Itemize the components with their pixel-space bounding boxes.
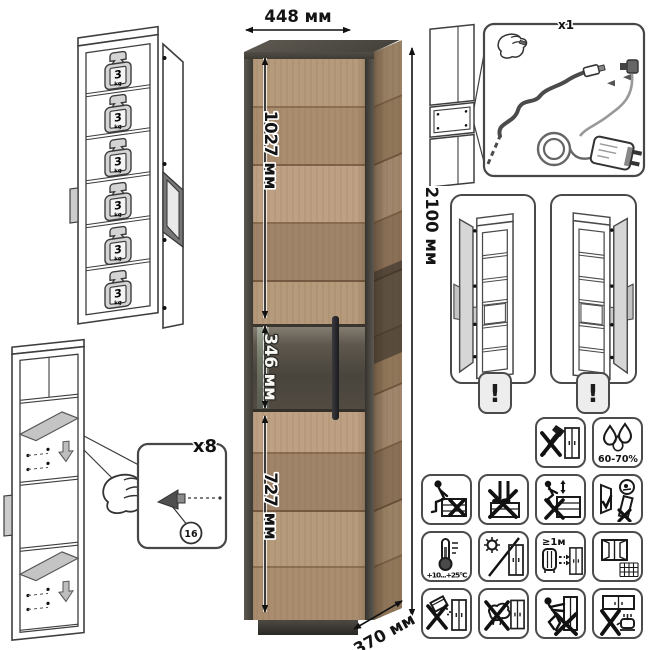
pictogram-humidity: 60-70% xyxy=(592,417,643,468)
svg-text:kg: kg xyxy=(114,124,122,131)
shelf-load-diagram: 3 kg 3 kg 3 kg 3 kg 3 kg 3 kg xyxy=(6,12,190,330)
svg-text:3: 3 xyxy=(114,111,122,125)
part-number-label: 16 xyxy=(184,529,198,540)
svg-text:3: 3 xyxy=(114,155,122,169)
pictogram-no-climbing xyxy=(535,474,586,525)
cabinet-top-frame xyxy=(244,52,374,59)
exclamation-mark: ! xyxy=(489,379,500,408)
shelf-assembly-diagram: x8 16 xyxy=(2,332,234,650)
pictogram-no-standing xyxy=(478,474,529,525)
svg-text:3: 3 xyxy=(114,243,122,257)
no-wet-cloth-icon xyxy=(482,592,526,636)
grid-spacer xyxy=(478,417,529,468)
variant-cabinet-left xyxy=(452,196,534,382)
cabinet-front xyxy=(244,52,374,620)
led-qty-label: x1 xyxy=(558,18,574,32)
pictogram-no-sunlight xyxy=(478,531,529,582)
cabinet-left-frame xyxy=(244,52,253,620)
heater-distance-icon: ≥1м xyxy=(539,535,583,579)
pictogram-no-heat-below xyxy=(592,588,643,639)
pictogram-heater-distance: ≥1м xyxy=(535,531,586,582)
svg-text:kg: kg xyxy=(114,168,122,175)
ventilation-icon xyxy=(596,535,640,579)
open-door xyxy=(163,44,184,328)
no-sitting-icon xyxy=(425,478,469,522)
no-heat-below-icon xyxy=(596,592,640,636)
exclamation-icon: ! xyxy=(478,372,512,414)
svg-text:3: 3 xyxy=(114,199,122,213)
pictogram-no-axe xyxy=(535,417,586,468)
grid-spacer xyxy=(421,417,472,468)
assembly-instruction-sheet: { "dimensions": { "width": "448 мм", "up… xyxy=(0,0,650,650)
variant-cabinet-right xyxy=(552,196,635,382)
temperature-icon: +10...+25°C xyxy=(425,535,469,579)
heater-distance-label: ≥1м xyxy=(542,537,566,548)
svg-text:kg: kg xyxy=(114,81,122,88)
pictogram-no-dragging xyxy=(535,588,586,639)
cabinet-side-glass-band xyxy=(374,260,402,364)
cabinet-handle xyxy=(332,316,339,420)
door-warning-icon xyxy=(596,478,640,522)
no-climbing-icon xyxy=(539,478,583,522)
led-kit-diagram: x1 xyxy=(422,16,650,186)
fastener-qty-label: x8 xyxy=(193,436,217,457)
pictogram-temperature: +10...+25°C xyxy=(421,531,472,582)
dim-height-label: 2100 мм xyxy=(422,187,441,266)
temperature-label: +10...+25°C xyxy=(426,570,467,579)
no-axe-icon xyxy=(539,421,583,465)
svg-text:kg: kg xyxy=(114,300,122,307)
exclamation-icon: ! xyxy=(576,372,610,414)
pictogram-no-abrasive xyxy=(421,588,472,639)
svg-text:3: 3 xyxy=(114,287,122,301)
humidity-label: 60-70% xyxy=(598,454,638,465)
no-sunlight-icon xyxy=(482,535,526,579)
dim-width-label: 448 мм xyxy=(264,7,331,26)
pictogram-ventilation xyxy=(592,531,643,582)
pictogram-door-warning xyxy=(592,474,643,525)
svg-text:kg: kg xyxy=(114,256,122,263)
pictogram-no-wet-cloth xyxy=(478,588,529,639)
no-dragging-icon xyxy=(539,592,583,636)
no-standing-icon xyxy=(482,478,526,522)
no-abrasive-icon xyxy=(425,592,469,636)
variant-left-hinged xyxy=(450,194,536,384)
exclamation-mark: ! xyxy=(587,379,598,408)
cabinet-right-frame xyxy=(365,52,374,620)
humidity-icon: 60-70% xyxy=(596,421,640,465)
svg-text:3: 3 xyxy=(114,68,122,82)
pictogram-no-sitting xyxy=(421,474,472,525)
cabinet-glass-section xyxy=(253,324,365,412)
cabinet-plinth xyxy=(258,620,358,635)
svg-text:kg: kg xyxy=(114,212,122,219)
glass-reflection xyxy=(257,327,269,409)
variant-right-hinged xyxy=(550,194,637,384)
care-pictogram-grid: 60-70% xyxy=(421,417,647,643)
cabinet-side-face xyxy=(374,40,402,620)
